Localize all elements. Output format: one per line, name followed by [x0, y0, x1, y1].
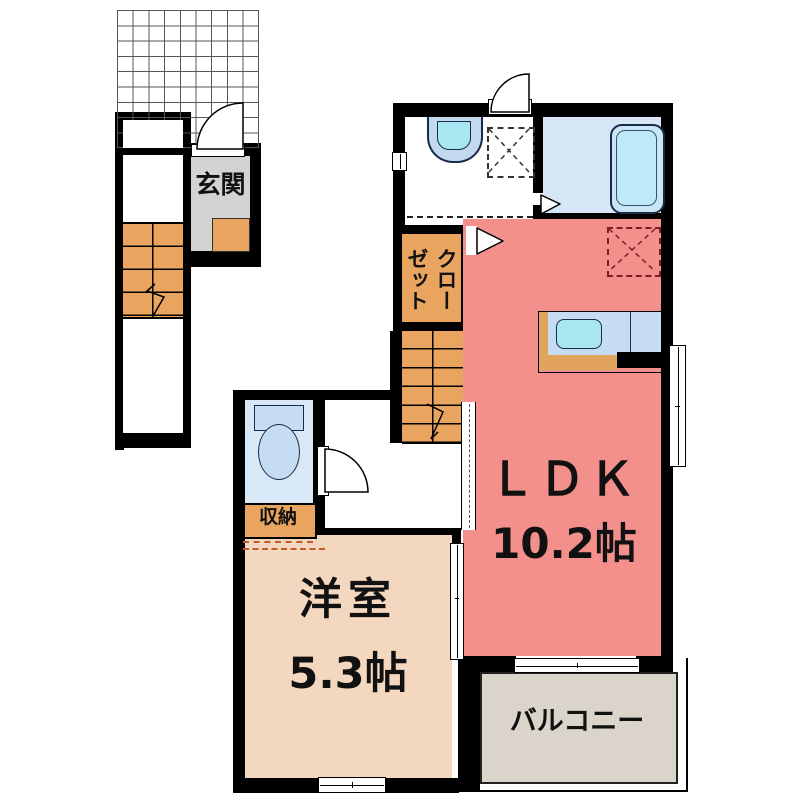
storage-shelf-dashed [243, 541, 313, 543]
storage-shelf-dashed [243, 548, 325, 550]
wall [617, 352, 661, 368]
kitchen-counter-edge [540, 355, 618, 370]
hall-door-leaf [317, 446, 329, 496]
wall [115, 433, 191, 448]
wall [393, 103, 673, 117]
entrance-cabinet [123, 120, 183, 148]
ldk-floor [463, 219, 661, 656]
unit-entry-door-leaf [488, 99, 532, 115]
entrance-mat [212, 218, 250, 252]
washroom-window [392, 152, 407, 171]
western-room-size-label: 5.3帖 [248, 652, 448, 697]
toilet-bowl [258, 424, 300, 480]
closet-doorway [466, 226, 477, 255]
entrance-door-leaf [191, 144, 245, 157]
ldk-window [669, 345, 686, 467]
western-ldk-partition [450, 543, 464, 660]
storage-label: 収納 [243, 508, 313, 528]
stairs-first-floor [123, 222, 183, 319]
wall [233, 390, 245, 793]
refrigerator-space [607, 227, 661, 277]
bathtub-inner [616, 130, 657, 206]
wall [390, 331, 402, 443]
wall [458, 656, 480, 792]
washbasin-bowl [437, 121, 471, 150]
kitchen-sink [556, 319, 602, 349]
balcony-rail [686, 658, 688, 792]
washing-machine-pan [487, 127, 535, 178]
hall-door-swing [325, 449, 368, 492]
ldk-label: ＬＤＫ [468, 455, 660, 503]
wall [636, 656, 673, 672]
counter-divider [630, 312, 631, 356]
ldk-size-label: 10.2帖 [468, 522, 660, 566]
balcony-sliding-window [514, 658, 640, 673]
balcony-rail [458, 790, 688, 792]
western-room-label: 洋室 [252, 578, 444, 623]
closet-label: クローゼット [403, 238, 460, 320]
entrance-label: 玄関 [191, 172, 250, 198]
floor-plan: 玄関 クローゼット 収納 ＬＤＫ 10.2帖 洋室 5.3帖 バルコニー [0, 0, 800, 800]
balcony-label: バルコニー [482, 708, 672, 736]
washroom-passage-dashed [407, 216, 533, 218]
western-room-window [318, 777, 386, 793]
stairs-second-floor [402, 331, 463, 444]
